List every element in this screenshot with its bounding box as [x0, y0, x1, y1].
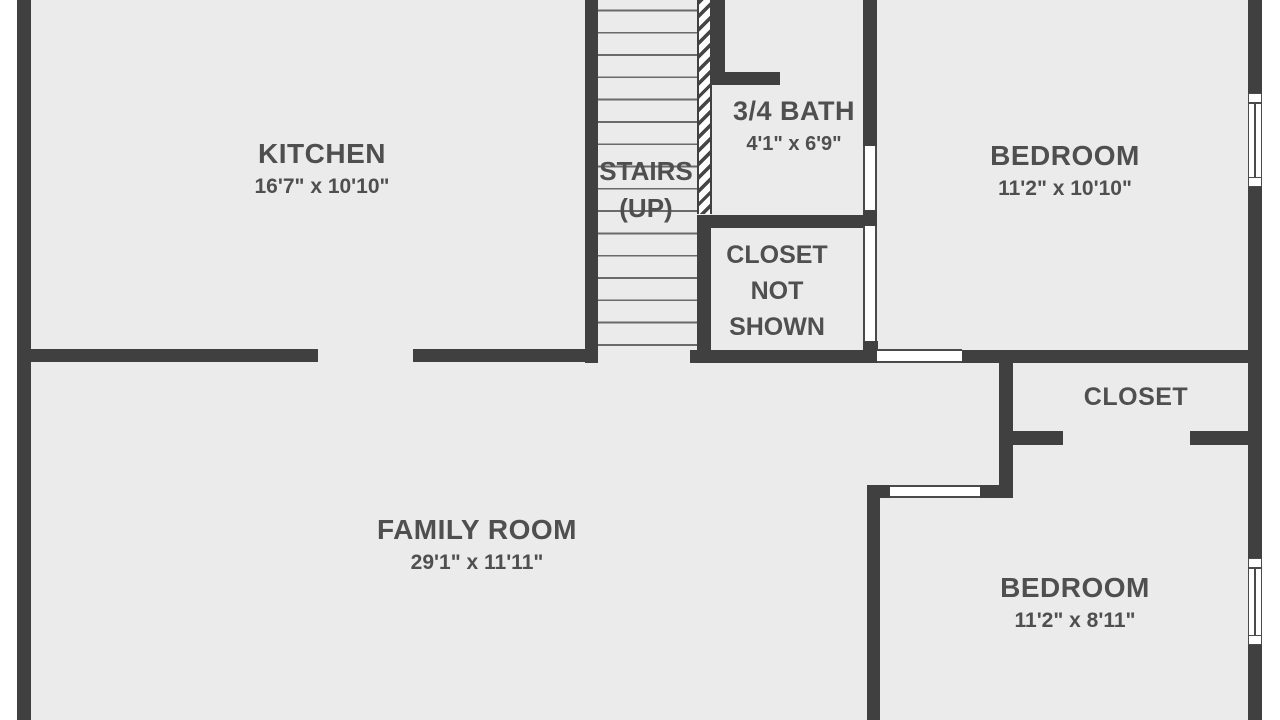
stairs-direction: (UP)	[599, 190, 692, 227]
window-sill-icon	[1249, 635, 1261, 637]
wall-bath-right-lower	[863, 208, 877, 228]
wall-closet-stub-left	[1013, 431, 1063, 445]
family-room-name: FAMILY ROOM	[377, 514, 577, 546]
wall-closet-left	[999, 363, 1013, 498]
closet-name: CLOSET	[1084, 381, 1188, 413]
wall-kitchen-bottom-left	[17, 349, 318, 362]
window-pane-icon	[1254, 103, 1256, 177]
wall-hall-top	[962, 350, 1262, 363]
family-room-dimensions: 29'1" x 11'11"	[377, 551, 577, 575]
room-label-closet-note: CLOSET NOT SHOWN	[712, 237, 842, 345]
bath-dimensions: 4'1" x 6'9"	[733, 132, 855, 156]
wall-bath-right-upper	[863, 0, 877, 148]
wall-bedroom-2-top-right	[980, 485, 1013, 498]
window-symbol-bedroom-2	[1248, 558, 1262, 645]
room-label-bedroom-1: BEDROOM 11'2" x 10'10"	[990, 140, 1140, 201]
kitchen-dimensions: 16'7" x 10'10"	[254, 175, 389, 199]
closet-note-text: CLOSET NOT SHOWN	[712, 237, 842, 345]
door-opening-bath	[863, 146, 877, 210]
window-symbol-bedroom-1	[1248, 93, 1262, 187]
room-label-bedroom-2: BEDROOM 11'2" x 8'11"	[1000, 572, 1150, 633]
wall-bath-bottom	[697, 215, 877, 228]
room-label-closet: CLOSET	[1084, 381, 1188, 413]
wall-closet-note-left	[697, 228, 711, 363]
door-opening-bedroom-2	[890, 485, 980, 498]
floor-plan: KITCHEN 16'7" x 10'10" STAIRS (UP) 3/4 B…	[0, 0, 1280, 720]
wall-stairs-right-hatched	[697, 0, 712, 214]
door-opening-closet-note	[863, 226, 877, 343]
room-label-family-room: FAMILY ROOM 29'1" x 11'11"	[377, 514, 577, 575]
bedroom-2-name: BEDROOM	[1000, 572, 1150, 604]
window-pane-icon	[1254, 568, 1256, 635]
bedroom-1-name: BEDROOM	[990, 140, 1140, 172]
wall-bath-inner-stub	[712, 72, 780, 85]
window-sill-icon	[1249, 177, 1261, 179]
room-label-bath: 3/4 BATH 4'1" x 6'9"	[733, 95, 855, 156]
bedroom-1-dimensions: 11'2" x 10'10"	[990, 177, 1140, 201]
room-label-kitchen: KITCHEN 16'7" x 10'10"	[254, 138, 389, 199]
bath-name: 3/4 BATH	[733, 95, 855, 127]
bedroom-2-dimensions: 11'2" x 8'11"	[1000, 609, 1150, 633]
wall-kitchen-bottom-right	[413, 349, 598, 362]
wall-closet-note-corner	[863, 341, 878, 363]
stairs-name: STAIRS	[599, 153, 692, 190]
wall-closet-note-bottom	[690, 350, 878, 363]
room-label-stairs: STAIRS (UP)	[599, 153, 692, 227]
wall-bedroom-2-left	[867, 485, 880, 720]
door-opening-bedroom-1	[877, 349, 962, 363]
kitchen-name: KITCHEN	[254, 138, 389, 170]
wall-closet-stub-right	[1190, 431, 1248, 445]
wall-stairs-left	[585, 0, 598, 363]
